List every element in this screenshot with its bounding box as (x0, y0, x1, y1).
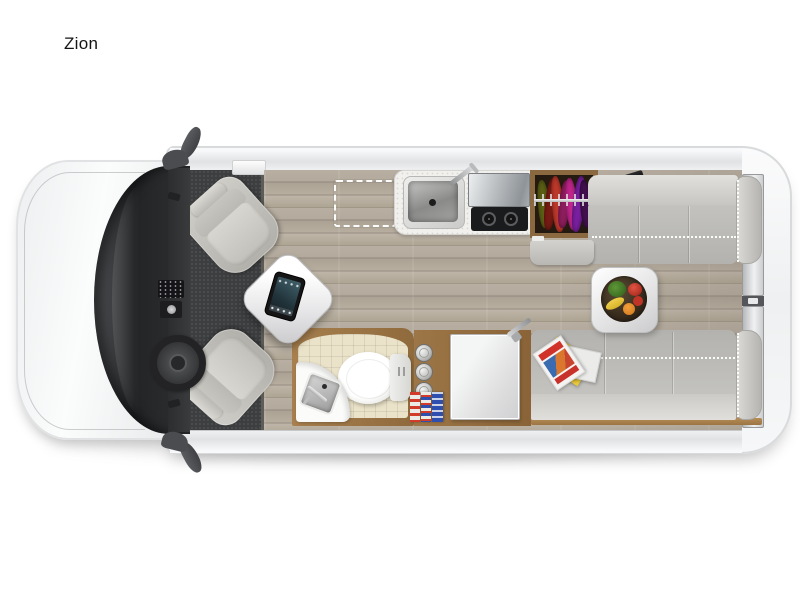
two-burner-cooktop (471, 207, 528, 231)
van-wall-bottom (170, 430, 742, 453)
entry-step (232, 160, 266, 175)
food-box-icon (421, 392, 431, 422)
toilet-tank (390, 354, 411, 401)
toilet-tank-vent (398, 367, 400, 376)
canned-goods-icon (415, 344, 433, 362)
rear-sofa-top-seat (588, 205, 738, 264)
food-box-icon (432, 392, 443, 422)
rear-sofa-bottom-backrest (531, 394, 736, 420)
steering-wheel-hub (169, 354, 187, 372)
fold-out-bed-line (592, 236, 736, 238)
refrigerator (450, 334, 520, 420)
floorplan-canvas: Zion (0, 0, 800, 600)
burner-icon (504, 212, 518, 226)
rear-door-handle (748, 298, 758, 304)
rear-sofa-top-armrest (736, 176, 762, 264)
sofa-seam (604, 332, 605, 394)
sofa-seam (672, 332, 673, 394)
rear-sofa-top-backrest (588, 175, 738, 206)
toilet-seat (346, 359, 392, 399)
fold-out-bed-line (737, 180, 739, 262)
sofa-seam (638, 206, 639, 263)
dash-radio-unit (158, 280, 184, 298)
bathroom-sink-drain (322, 384, 327, 389)
fruit-orange-icon (623, 303, 635, 315)
fruit-berry-icon (633, 296, 643, 306)
food-box-icon (410, 392, 420, 422)
sofa-seam (688, 206, 689, 263)
fruit-greens-icon (608, 281, 626, 297)
toilet-tank-vent (403, 367, 405, 376)
dash-console-knob (167, 305, 176, 314)
fold-out-bed-line (737, 333, 739, 417)
dashboard (168, 168, 190, 432)
fruit-apple-icon (628, 283, 642, 296)
stove-flip-lid (468, 173, 530, 207)
page-title: Zion (64, 34, 98, 54)
sofa-hinge (532, 236, 544, 241)
rear-sofa-top-end-armrest (530, 240, 594, 265)
rear-sofa-bottom-armrest (736, 330, 762, 420)
canned-goods-icon (415, 363, 433, 381)
sink-drain (429, 199, 436, 206)
optional-floor-area-dashed (334, 180, 396, 227)
burner-icon (482, 212, 496, 226)
hanger-rod (534, 199, 594, 202)
